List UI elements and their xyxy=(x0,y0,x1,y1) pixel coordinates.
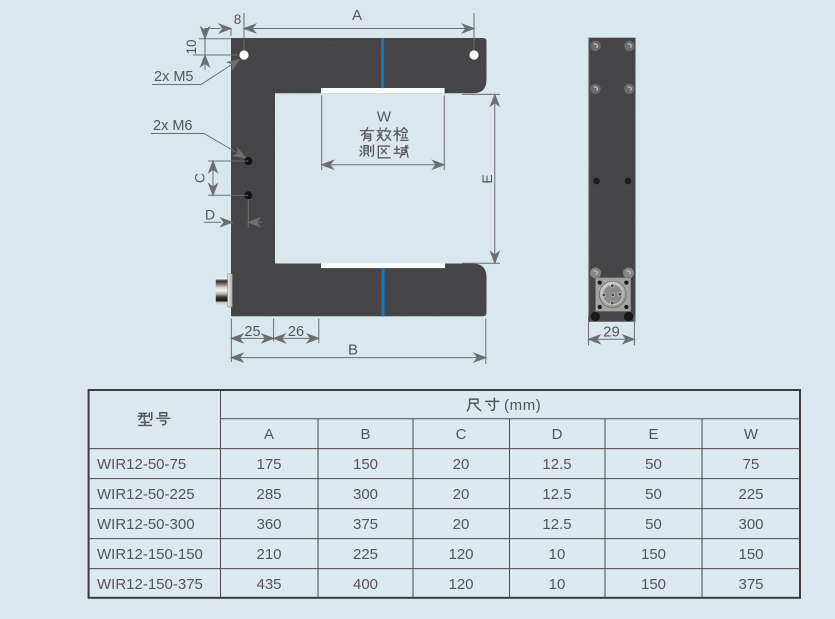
svg-text:W: W xyxy=(744,426,759,443)
svg-text:E: E xyxy=(479,174,495,183)
svg-text:120: 120 xyxy=(448,546,473,563)
svg-text:2x M6: 2x M6 xyxy=(153,118,193,134)
svg-text:26: 26 xyxy=(288,324,304,340)
svg-text:(mm): (mm) xyxy=(504,397,541,414)
svg-text:225: 225 xyxy=(738,486,763,503)
svg-text:120: 120 xyxy=(448,576,473,593)
svg-text:10: 10 xyxy=(549,546,566,563)
svg-text:300: 300 xyxy=(738,516,763,533)
svg-text:150: 150 xyxy=(641,546,666,563)
svg-text:10: 10 xyxy=(549,576,566,593)
svg-text:50: 50 xyxy=(645,486,662,503)
svg-text:10: 10 xyxy=(184,39,199,54)
svg-text:8: 8 xyxy=(234,12,242,27)
svg-text:WIR12-150-375: WIR12-150-375 xyxy=(97,576,203,593)
svg-text:150: 150 xyxy=(353,456,378,473)
svg-text:B: B xyxy=(360,426,370,443)
svg-text:29: 29 xyxy=(603,324,620,341)
svg-text:25: 25 xyxy=(244,324,260,340)
svg-text:375: 375 xyxy=(738,576,763,593)
svg-text:435: 435 xyxy=(256,576,281,593)
svg-text:D: D xyxy=(552,426,563,443)
svg-text:285: 285 xyxy=(256,486,281,503)
svg-text:50: 50 xyxy=(645,456,662,473)
svg-text:C: C xyxy=(456,426,467,443)
svg-text:360: 360 xyxy=(256,516,281,533)
svg-text:20: 20 xyxy=(453,456,470,473)
svg-text:12.5: 12.5 xyxy=(542,486,571,503)
svg-text:12.5: 12.5 xyxy=(542,456,571,473)
svg-text:400: 400 xyxy=(353,576,378,593)
svg-text:175: 175 xyxy=(256,456,281,473)
svg-text:75: 75 xyxy=(743,456,760,473)
svg-text:B: B xyxy=(348,342,358,359)
svg-text:WIR12-50-225: WIR12-50-225 xyxy=(97,486,195,503)
svg-text:E: E xyxy=(648,426,658,443)
svg-text:D: D xyxy=(205,207,215,223)
svg-text:WIR12-150-150: WIR12-150-150 xyxy=(97,546,203,563)
svg-text:A: A xyxy=(264,426,274,443)
svg-text:A: A xyxy=(352,7,362,24)
svg-text:WIR12-50-75: WIR12-50-75 xyxy=(97,456,186,473)
svg-text:210: 210 xyxy=(256,546,281,563)
svg-text:50: 50 xyxy=(645,516,662,533)
svg-text:20: 20 xyxy=(453,486,470,503)
svg-text:2x M5: 2x M5 xyxy=(154,69,194,85)
svg-text:C: C xyxy=(192,173,208,183)
svg-text:150: 150 xyxy=(641,576,666,593)
svg-text:W: W xyxy=(377,109,392,126)
svg-text:WIR12-50-300: WIR12-50-300 xyxy=(97,516,195,533)
svg-text:150: 150 xyxy=(738,546,763,563)
svg-text:300: 300 xyxy=(353,486,378,503)
svg-text:375: 375 xyxy=(353,516,378,533)
svg-text:12.5: 12.5 xyxy=(542,516,571,533)
svg-text:225: 225 xyxy=(353,546,378,563)
svg-text:20: 20 xyxy=(453,516,470,533)
